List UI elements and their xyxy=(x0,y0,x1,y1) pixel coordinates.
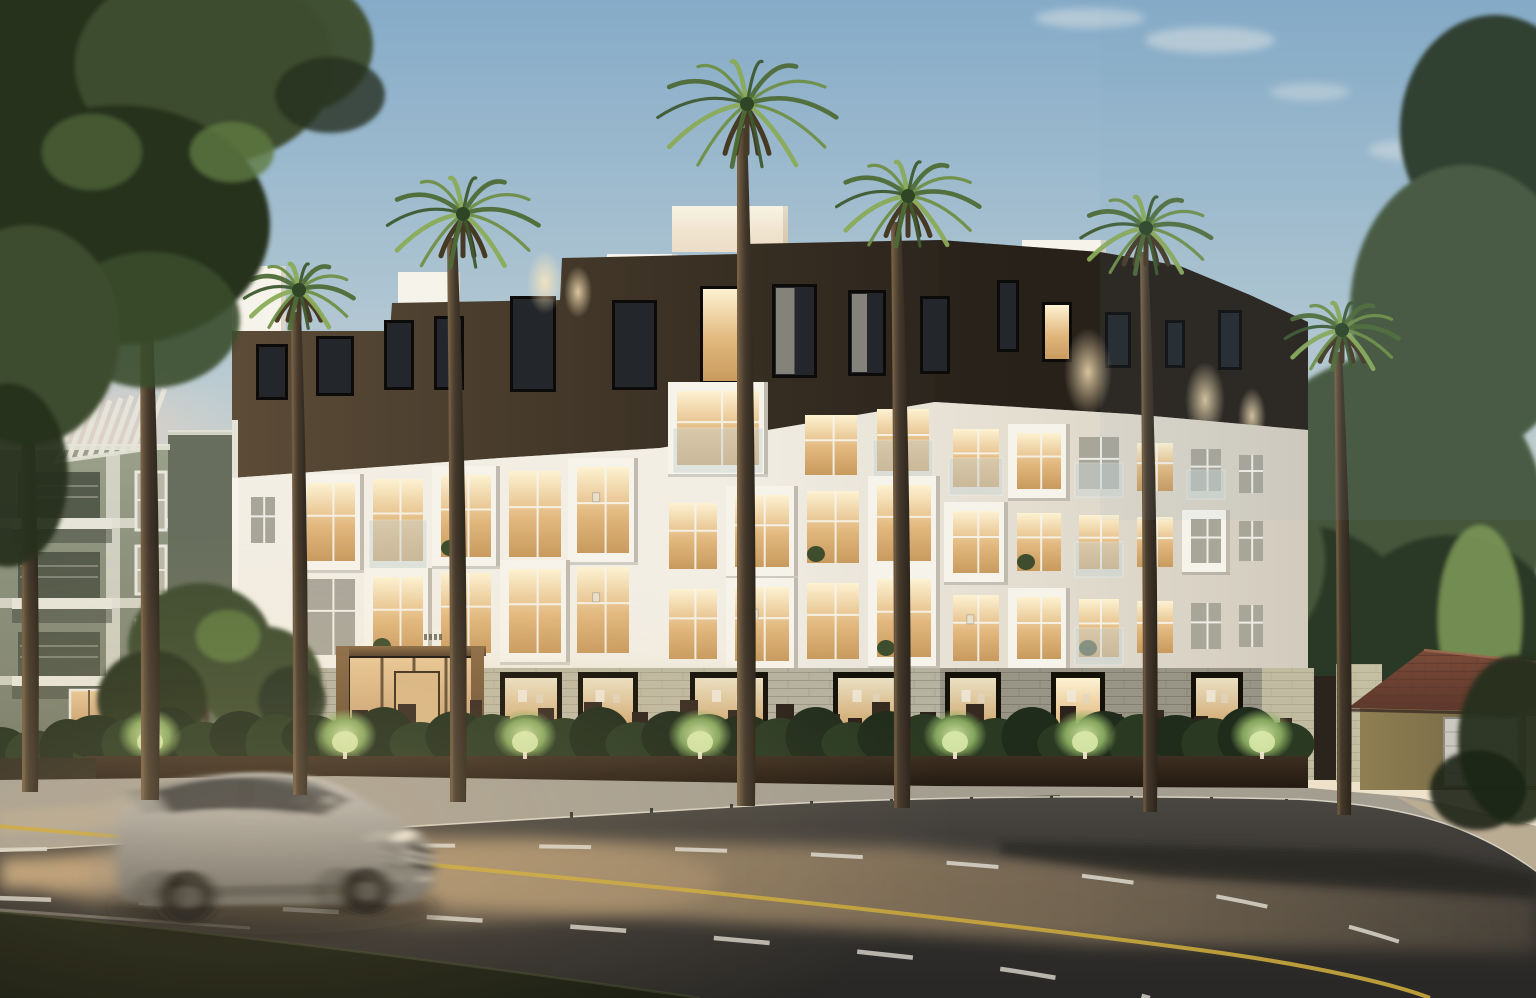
window-module xyxy=(944,502,1008,585)
parapet-cap xyxy=(168,430,232,435)
dark-floor-window xyxy=(772,284,817,378)
window-module xyxy=(1075,599,1123,665)
window-module xyxy=(726,486,798,579)
window-module xyxy=(1008,588,1070,671)
window-module xyxy=(1008,424,1070,501)
uplight-fixture xyxy=(1083,752,1087,759)
window-module xyxy=(805,415,857,475)
wall-gap-shadow xyxy=(1314,676,1338,780)
uplight-glow xyxy=(527,250,563,314)
dark-floor-window xyxy=(848,290,886,376)
dark-floor-window xyxy=(316,336,354,396)
window-module xyxy=(1017,513,1061,571)
dark-floor-window xyxy=(920,296,950,374)
rendering-canvas xyxy=(0,0,1536,998)
window-module xyxy=(949,429,1003,495)
dark-floor-window xyxy=(700,286,742,384)
uplight-fixture xyxy=(1260,752,1264,759)
uplight-fixture xyxy=(953,752,957,759)
dark-floor-window xyxy=(256,344,288,400)
window-module xyxy=(1239,521,1263,561)
dark-floor-window xyxy=(997,280,1019,352)
window-module xyxy=(1191,603,1221,649)
branch-silhouette xyxy=(275,57,385,133)
cool-tint xyxy=(1100,0,1536,520)
canopy-highlight xyxy=(42,114,142,190)
canopy-highlight xyxy=(190,122,274,182)
garage-corner-foliage xyxy=(1430,750,1526,830)
dark-floor-window xyxy=(612,300,657,390)
window-module xyxy=(807,491,859,563)
tree-canopy xyxy=(60,252,240,388)
window-module xyxy=(669,503,717,569)
uplight-glow xyxy=(564,266,592,318)
window-module xyxy=(568,458,638,565)
window-module xyxy=(509,471,561,557)
window-module xyxy=(1075,515,1123,577)
dark-floor-window xyxy=(384,320,414,390)
architectural-rendering-scene xyxy=(0,0,1536,998)
window-module xyxy=(953,595,999,661)
window-module xyxy=(1239,605,1263,647)
